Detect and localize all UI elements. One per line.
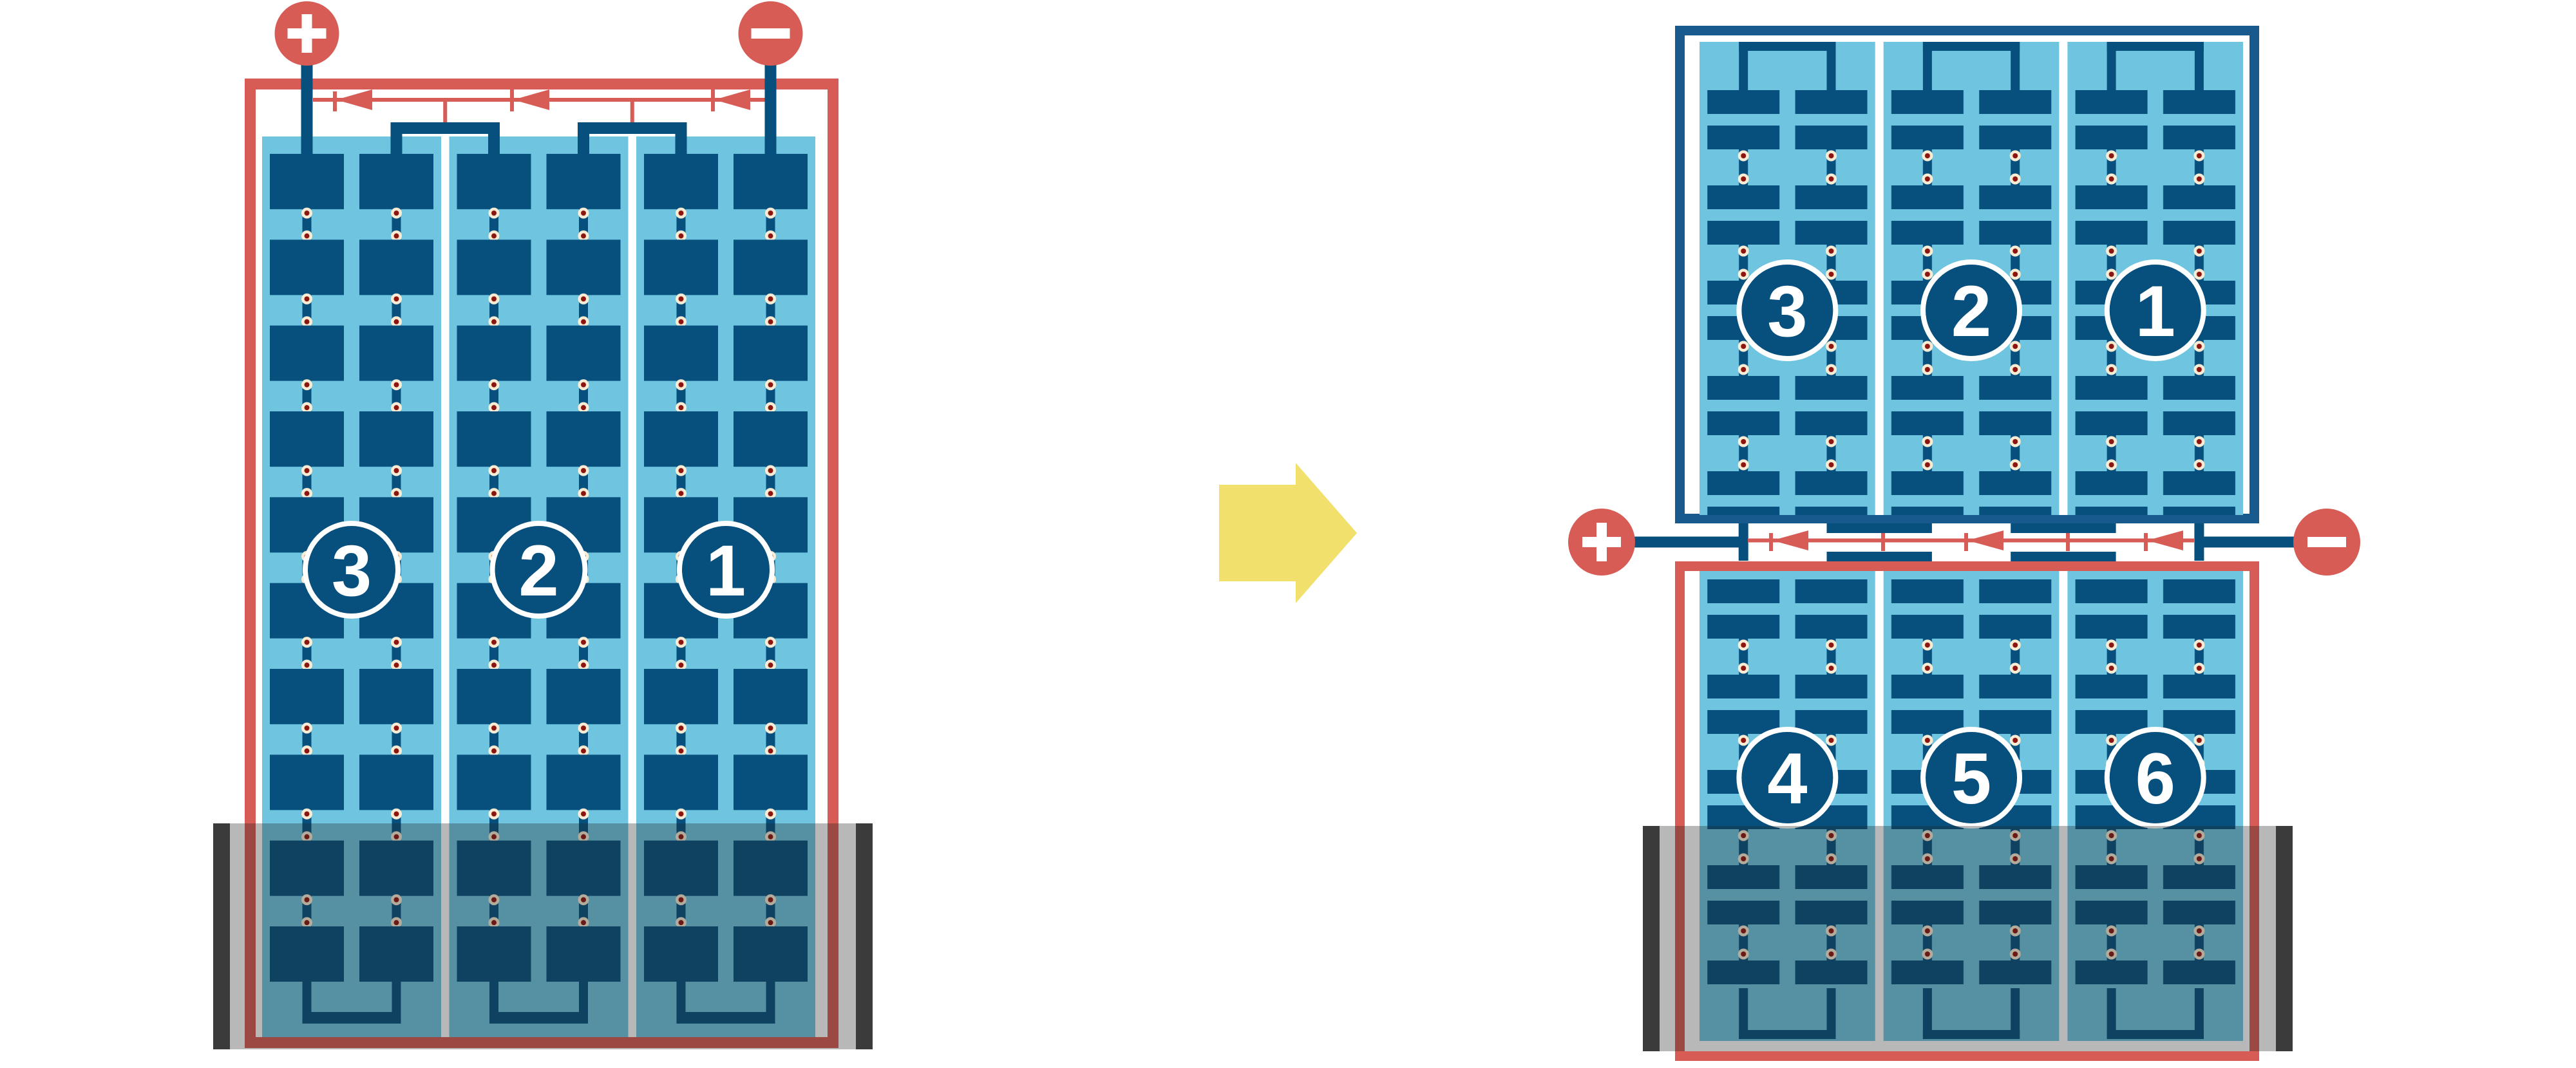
cell-number: 4: [1767, 738, 1807, 819]
minus-icon: [2307, 537, 2346, 547]
negative-terminal-stem: [2199, 537, 2294, 548]
cell-number: 2: [1951, 271, 1991, 351]
flood-band-cap-right: [856, 823, 873, 1049]
cell-number-badges-left: 3 2 1: [305, 523, 772, 616]
flood-level-band: [213, 823, 873, 1049]
cell-number: 3: [332, 530, 372, 611]
diagram-canvas: 3 2 1: [0, 0, 2576, 1068]
tick: [1769, 533, 1773, 551]
current-direction-annotation-left: [313, 89, 765, 124]
tick: [333, 91, 337, 111]
flood-band-cap-left: [213, 823, 230, 1049]
current-arrow-icon: [1967, 530, 2003, 550]
current-arrow-icon: [336, 89, 372, 110]
positive-terminal: [1568, 509, 1635, 576]
negative-terminal: [739, 1, 803, 66]
cell-number: 2: [518, 530, 558, 611]
positive-terminal-stem: [301, 61, 313, 158]
cell-number: 1: [706, 530, 746, 611]
negative-terminal: [2293, 509, 2360, 576]
tick: [1964, 533, 1968, 551]
cell-number: 1: [2136, 271, 2175, 351]
current-arrow-icon: [513, 89, 549, 110]
current-arrow-icon: [714, 89, 750, 110]
current-arrow-icon: [1772, 530, 1808, 550]
flood-level-band: [1643, 826, 2293, 1051]
positive-terminal-stem: [1634, 537, 1743, 548]
right-battery: 3 2 1 4 5 6: [1568, 31, 2360, 1056]
left-battery: 3 2 1: [213, 1, 873, 1049]
minus-icon: [752, 28, 790, 39]
connector-drop: [443, 102, 447, 124]
tick: [2066, 533, 2070, 551]
current-arrow-icon: [2147, 530, 2183, 550]
cell-number: 3: [1767, 271, 1807, 351]
cell-number: 5: [1951, 738, 1991, 819]
battery-series-diagram: 3 2 1: [0, 0, 2576, 1068]
positive-terminal: [275, 1, 339, 66]
transform-arrow-icon: [1219, 463, 1357, 603]
tick: [510, 89, 514, 111]
current-direction-annotation-right: [1748, 530, 2194, 551]
connector-drop: [630, 102, 634, 124]
tick: [2144, 533, 2148, 551]
tick: [1881, 533, 1885, 551]
cell-number: 6: [2136, 738, 2175, 819]
cell-separator: [2059, 42, 2067, 515]
flood-band-cap-left: [1643, 826, 1660, 1051]
negative-terminal-stem: [765, 61, 777, 158]
cell-number-badges-right-bottom: 4 5 6: [1739, 729, 2203, 826]
cell-separator: [1875, 42, 1884, 515]
tick: [711, 89, 715, 111]
cell-number-badges-right-top: 3 2 1: [1739, 262, 2203, 359]
flood-band-cap-right: [2276, 826, 2293, 1051]
